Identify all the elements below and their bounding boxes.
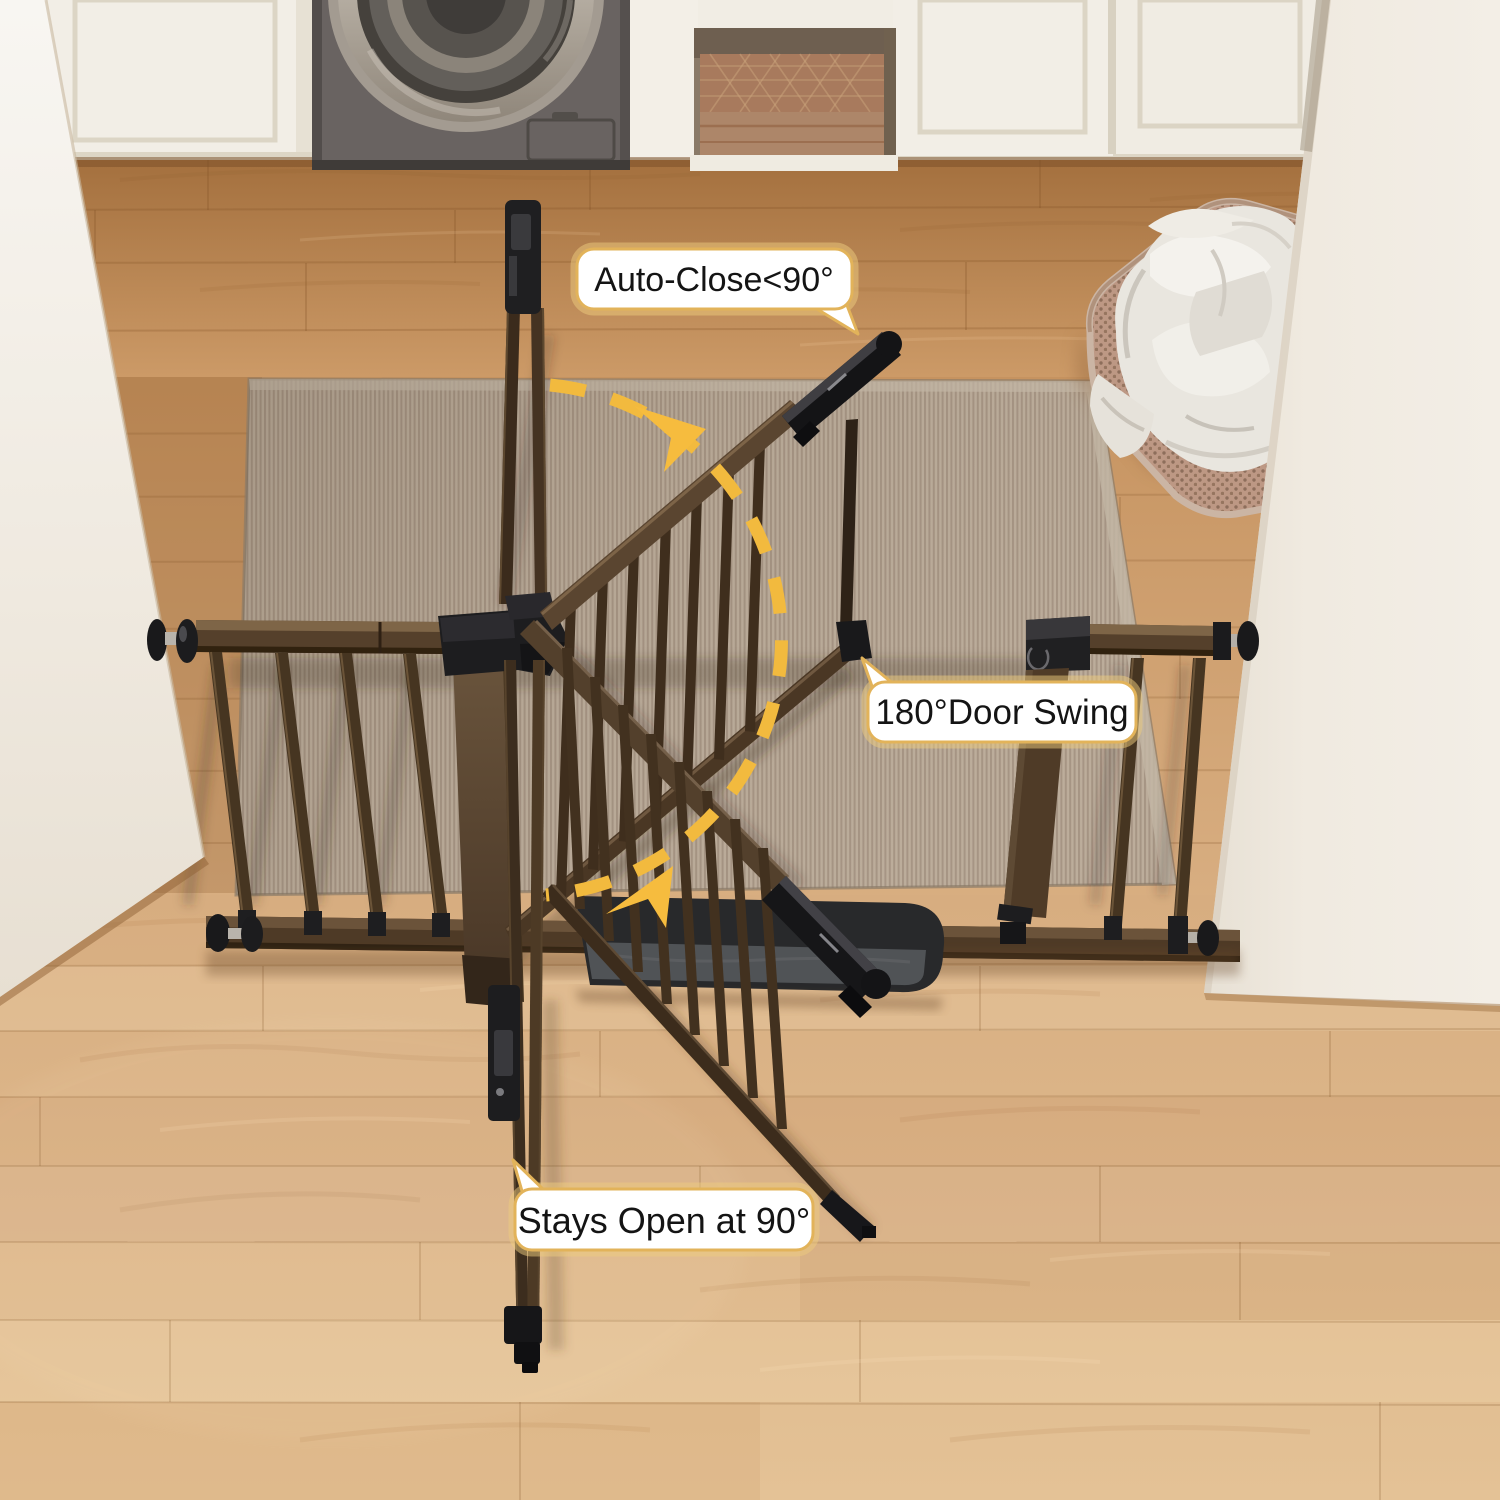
svg-text:180°Door Swing: 180°Door Swing: [875, 693, 1128, 732]
svg-text:Auto-Close<90°: Auto-Close<90°: [594, 261, 833, 299]
svg-text:Stays Open at 90°: Stays Open at 90°: [518, 1200, 811, 1241]
